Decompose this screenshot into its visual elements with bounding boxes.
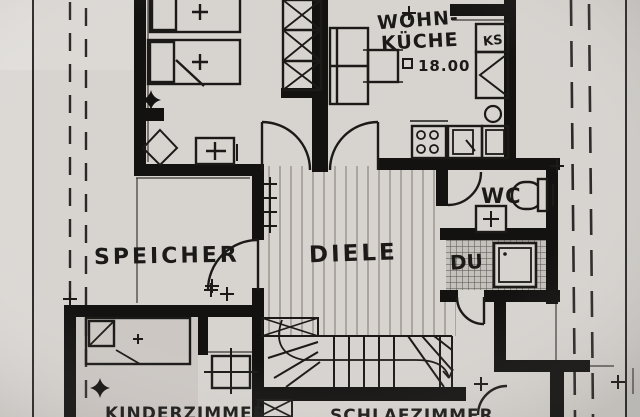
floor-plan-drawing: WOHN- KÜCHE 18.00 KS SPEICHER DIELE WC D… <box>0 0 640 417</box>
photo-vignette <box>0 0 640 417</box>
floor-plan-photo: WOHN- KÜCHE 18.00 KS SPEICHER DIELE WC D… <box>0 0 640 417</box>
